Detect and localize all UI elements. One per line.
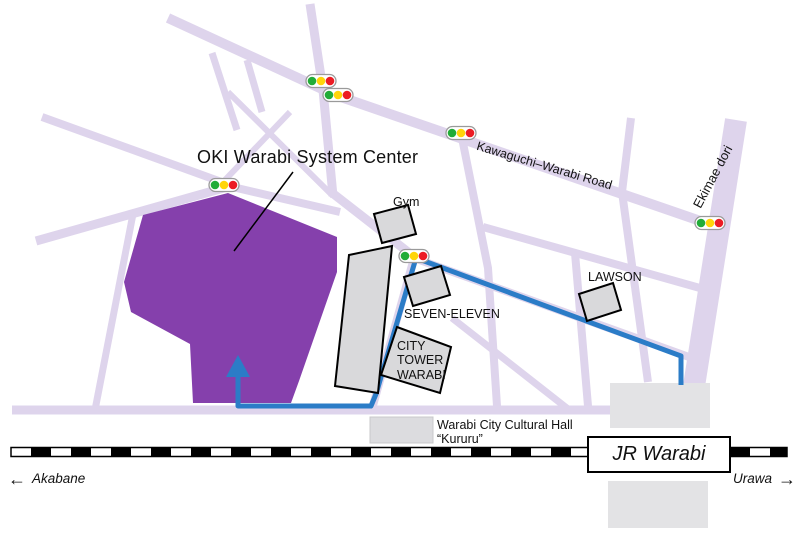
city-tower-label-line2: TOWER xyxy=(397,353,446,367)
traffic-light-icon-6 xyxy=(695,217,725,230)
city-tower-label-line1: CITY xyxy=(397,339,446,353)
road-city-tower-diagonal xyxy=(452,318,568,409)
direction-akabane-label: Akabane xyxy=(32,471,85,487)
traffic-light-icon-1 xyxy=(306,75,336,88)
station-platform-south xyxy=(608,481,708,528)
city-tower-label: CITY TOWER WARABI xyxy=(397,339,446,382)
access-map: OKI Warabi System Center Kawaguchi–Warab… xyxy=(0,0,800,533)
road-lawson-vertical xyxy=(575,253,588,406)
page-title: OKI Warabi System Center xyxy=(197,147,418,168)
station-label: JR Warabi xyxy=(588,437,730,472)
direction-urawa: Urawa → xyxy=(733,470,796,488)
traffic-light-icon-5 xyxy=(399,250,429,263)
right-arrow-icon: → xyxy=(778,470,796,488)
cultural-hall-shape xyxy=(370,417,433,443)
left-arrow-icon: ← xyxy=(8,470,26,488)
city-tower-label-line3: WARABI xyxy=(397,368,446,382)
lawson-label: LAWSON xyxy=(588,270,642,284)
road-west-of-oki xyxy=(95,214,133,410)
cultural-hall-label: Warabi City Cultural Hall “Kururu” xyxy=(437,418,573,447)
road-minor-1 xyxy=(228,92,333,196)
road-stub-1 xyxy=(212,53,237,130)
station-platform-north xyxy=(610,383,710,428)
road-mid-vertical xyxy=(461,133,497,406)
seven-eleven-label: SEVEN-ELEVEN xyxy=(404,307,500,321)
cultural-hall-label-line2: “Kururu” xyxy=(437,432,573,446)
traffic-light-icon-2 xyxy=(323,89,353,102)
direction-urawa-label: Urawa xyxy=(733,471,772,487)
lawson-shape xyxy=(579,283,621,321)
traffic-light-icon-4 xyxy=(209,179,239,192)
direction-akabane: ← Akabane xyxy=(8,470,85,488)
road-stub-2 xyxy=(247,60,262,112)
traffic-light-icon-3 xyxy=(446,127,476,140)
gym-label: Gym xyxy=(393,195,419,209)
gym-shape xyxy=(374,205,416,243)
cultural-hall-label-line1: Warabi City Cultural Hall xyxy=(437,418,573,432)
